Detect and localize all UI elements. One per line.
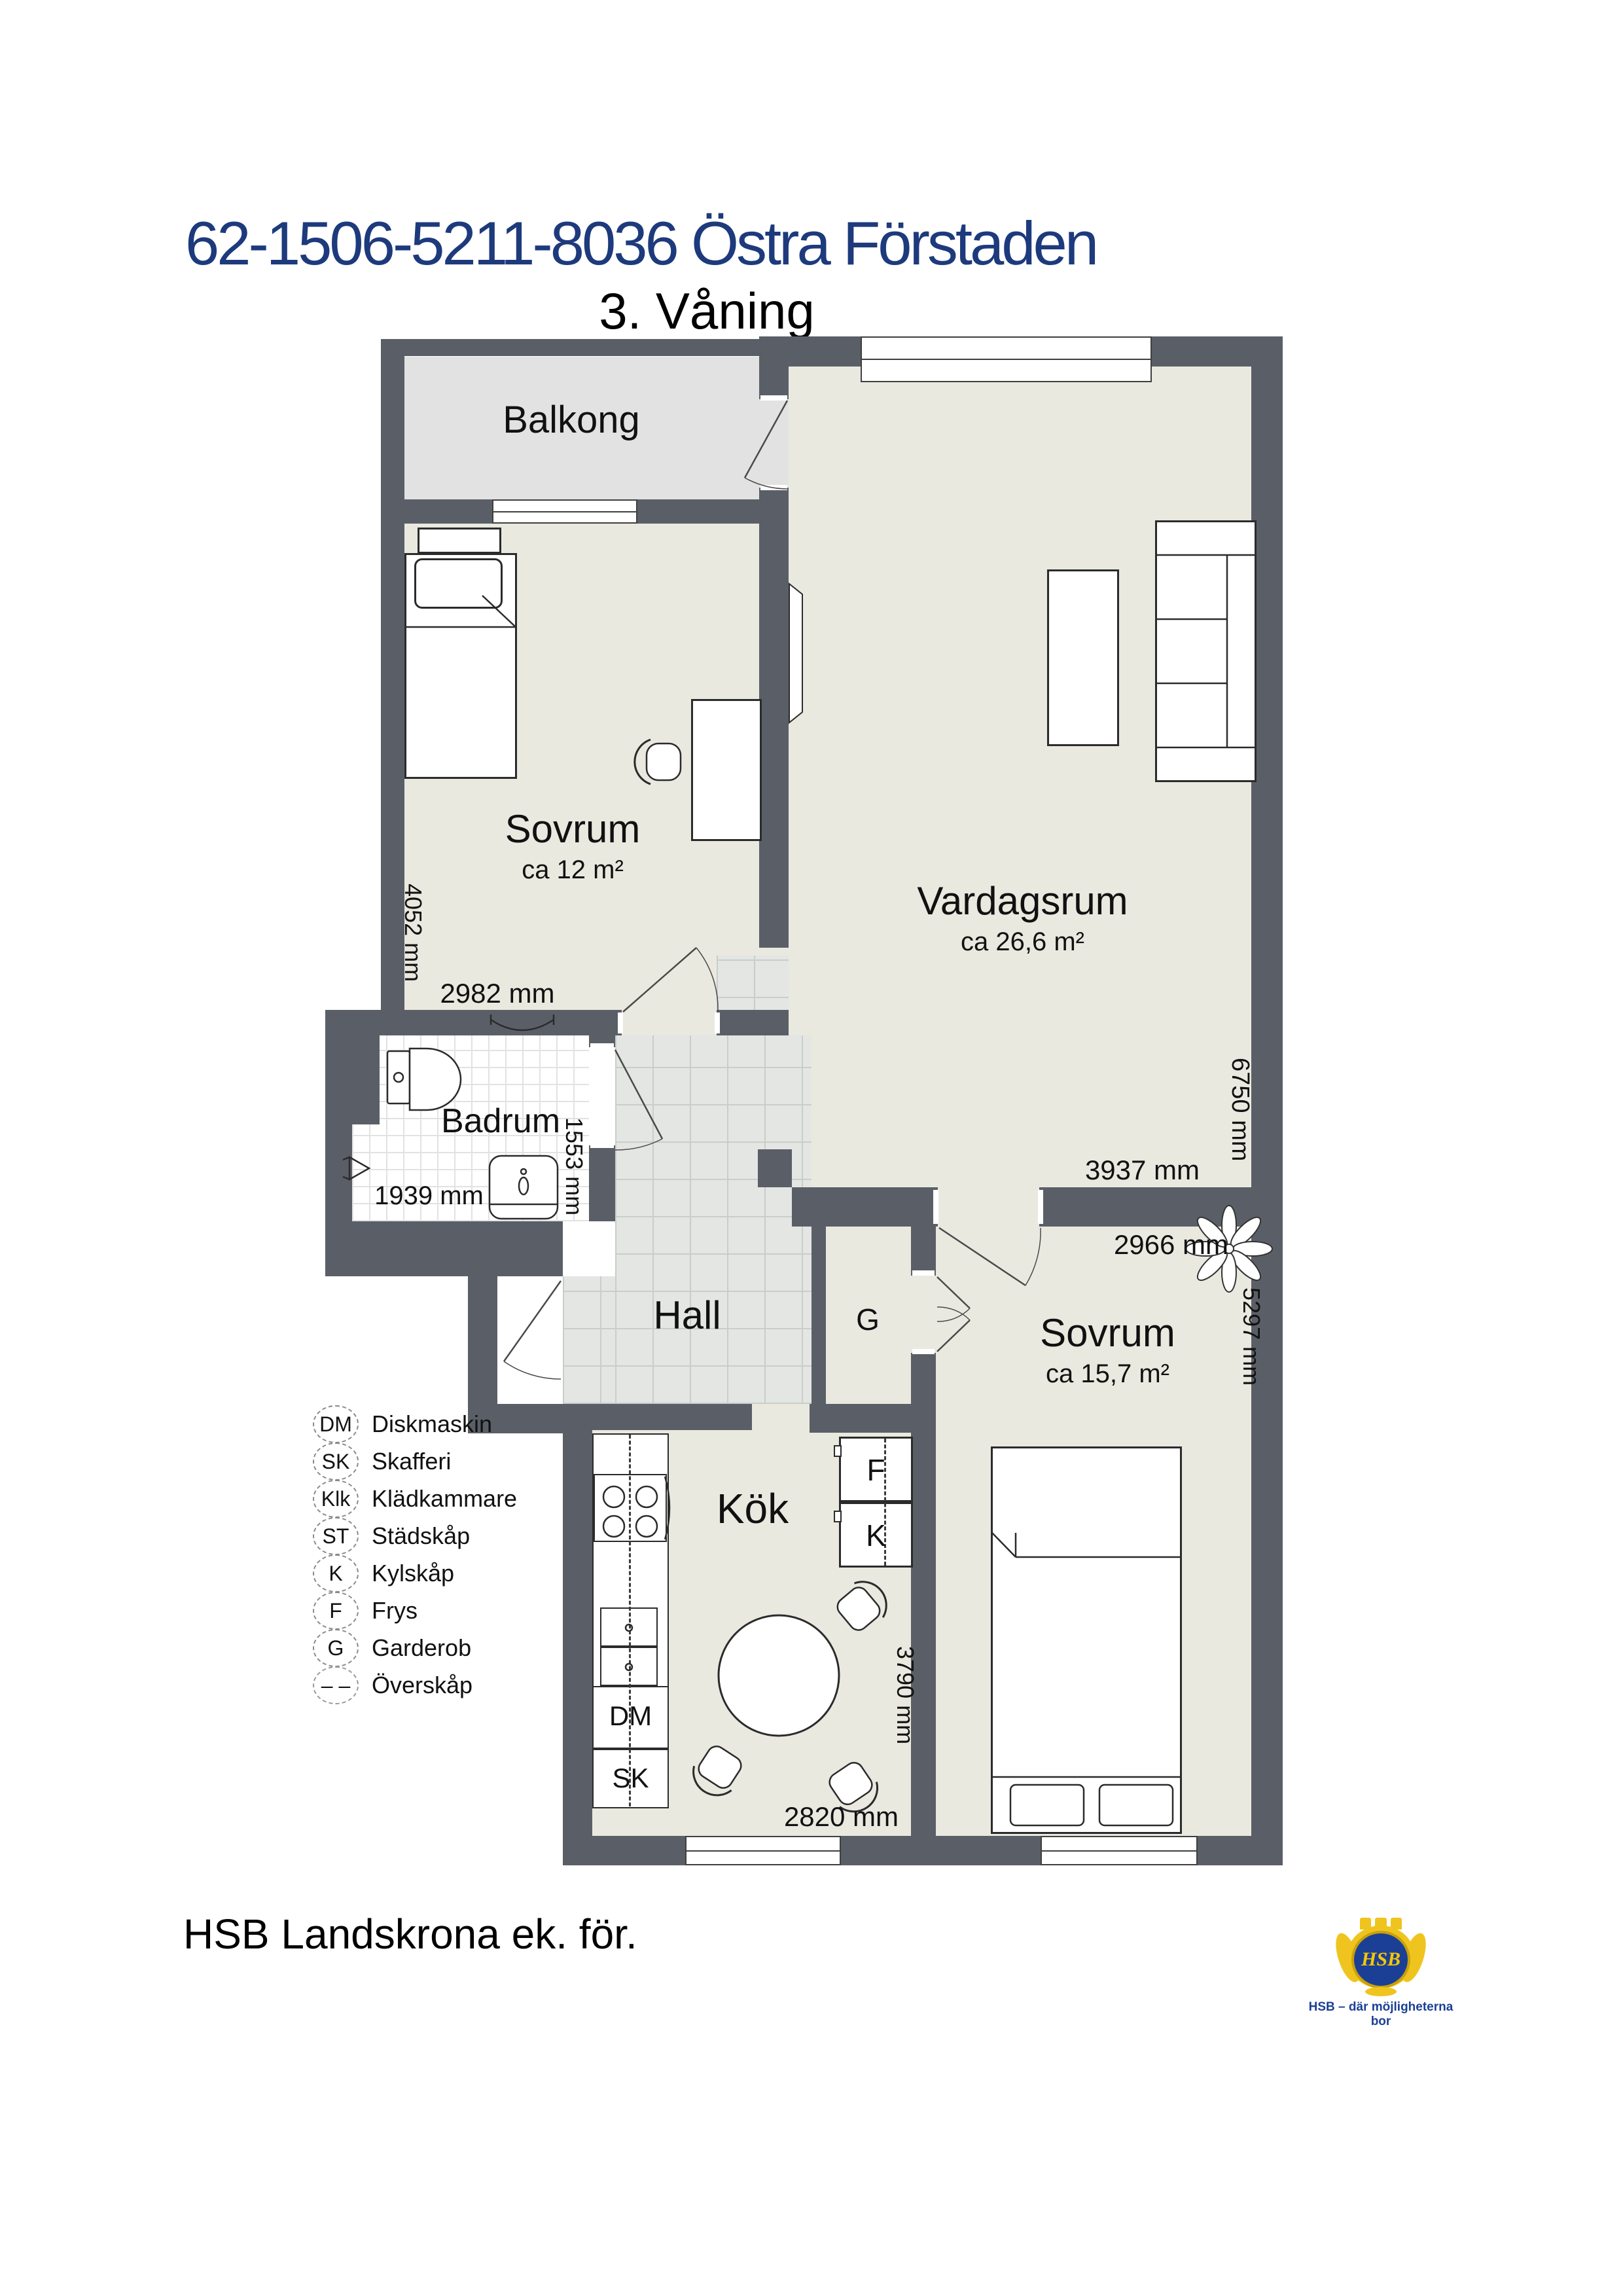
legend-row-garderob: G Garderob: [313, 1630, 471, 1666]
dim-kok-height: 3790 mm: [893, 1622, 918, 1769]
hsb-crest-icon: HSB: [1332, 1918, 1430, 1996]
single-bed-duvet: [406, 596, 516, 627]
legend-label: Skafferi: [372, 1448, 451, 1475]
room-label-kok: Kök: [681, 1487, 825, 1531]
unit-label-skafferi: SK: [592, 1764, 669, 1793]
dining-table: [719, 1615, 839, 1736]
legend-label: Städskåp: [372, 1522, 470, 1550]
dim-kok-width: 2820 mm: [764, 1803, 918, 1831]
room-area-sovrum-1: ca 12 m²: [458, 856, 687, 884]
hsb-logo: HSB HSB – där möjligheterna bor: [1302, 1918, 1459, 2029]
towel-rail-icon: [491, 1020, 554, 1030]
footer-association-name: HSB Landskrona ek. för.: [183, 1910, 637, 1958]
balcony-door-arc: [745, 478, 787, 489]
sovrum2-door-leaf: [939, 1228, 1026, 1285]
hsb-monogram-text: HSB: [1361, 1948, 1400, 1971]
entry-door-leaf: [504, 1281, 561, 1361]
dim-sovrum1-height: 4052 mm: [401, 869, 425, 997]
garderob-door-arc: [937, 1308, 970, 1321]
legend-label: Diskmaskin: [372, 1410, 492, 1438]
room-label-hall: Hall: [622, 1295, 753, 1336]
legend-row-overskap: – – Överskåp: [313, 1667, 473, 1704]
floorplan-page: 62-1506-5211-8036 Östra Förstaden 3. Vån…: [0, 0, 1623, 2296]
entry-door-arc: [504, 1361, 561, 1379]
room-label-badrum: Badrum: [419, 1103, 582, 1139]
room-label-vardagsrum: Vardagsrum: [890, 880, 1155, 922]
shower-icon: [349, 1157, 369, 1179]
legend-abbr: G: [313, 1629, 359, 1667]
drawer-handle: [626, 1624, 632, 1631]
unit-label-kylskap: K: [839, 1520, 913, 1551]
unit-label-diskmaskin: DM: [592, 1702, 669, 1731]
room-label-balkong: Balkong: [457, 401, 686, 440]
legend-label: Garderob: [372, 1634, 471, 1662]
legend-label: Kylskåp: [372, 1560, 454, 1587]
room-label-sovrum-1: Sovrum: [458, 808, 687, 850]
sofa-lines: [1155, 555, 1257, 747]
dim-badrum-width: 1939 mm: [365, 1182, 493, 1210]
legend-abbr: SK: [313, 1443, 359, 1480]
dim-vardagsrum-width: 3937 mm: [1065, 1156, 1219, 1185]
badrum-door-leaf: [615, 1050, 662, 1139]
dim-vardagsrum-height: 6750 mm: [1226, 1039, 1253, 1180]
badrum-door-arc: [615, 1139, 662, 1150]
garderob-door-leaf: [937, 1320, 970, 1352]
dim-sovrum1-width: 2982 mm: [429, 979, 566, 1008]
legend-row-diskmaskin: DM Diskmaskin: [313, 1406, 492, 1443]
legend-abbr: DM: [313, 1405, 359, 1443]
dim-sovrum2-width: 2966 mm: [1094, 1230, 1248, 1259]
shower-spray: [343, 1177, 349, 1179]
hsb-monogram: HSB: [1351, 1931, 1410, 1988]
legend-row-stadskap: ST Städskåp: [313, 1518, 470, 1554]
sovrum1-door-arc: [696, 948, 718, 1012]
sovrum2-door-arc: [1026, 1228, 1041, 1285]
hsb-tagline: HSB – där möjligheterna bor: [1302, 2000, 1459, 2029]
dim-badrum-height: 1553 mm: [562, 1107, 586, 1225]
stove-burners: [603, 1477, 669, 1670]
dining-chair: [831, 1573, 895, 1637]
legend-label: Frys: [372, 1597, 418, 1624]
legend-abbr: ST: [313, 1517, 359, 1555]
legend-row-kladkammare: Klk Klädkammare: [313, 1480, 517, 1517]
room-area-vardagsrum: ca 26,6 m²: [890, 928, 1155, 956]
sovrum1-door-leaf: [623, 948, 696, 1012]
legend-abbr: K: [313, 1554, 359, 1592]
unit-label-frys: F: [839, 1454, 913, 1486]
legend-row-skafferi: SK Skafferi: [313, 1443, 451, 1480]
legend-abbr: – –: [313, 1666, 359, 1704]
pillow: [1099, 1785, 1173, 1825]
dim-sovrum2-height: 5297 mm: [1239, 1266, 1264, 1407]
legend-row-frys: F Frys: [313, 1592, 418, 1629]
double-bed-details: [992, 1533, 1181, 1825]
pillow: [1010, 1785, 1084, 1825]
shower-spray: [343, 1157, 349, 1160]
desk-chair: [635, 740, 681, 784]
toilet-bowl: [410, 1049, 461, 1110]
closet-label-garderob: G: [847, 1304, 889, 1335]
drawer-handle: [626, 1664, 632, 1670]
legend-label: Klädkammare: [372, 1485, 517, 1513]
legend-abbr: F: [313, 1592, 359, 1630]
garderob-door-arc: [937, 1307, 970, 1320]
legend-label: Överskåp: [372, 1672, 473, 1699]
toilet-tank: [387, 1051, 410, 1103]
legend-abbr: Klk: [313, 1480, 359, 1518]
room-label-sovrum-2: Sovrum: [991, 1312, 1224, 1354]
balcony-door-leaf: [745, 401, 787, 478]
sink: [490, 1156, 558, 1219]
legend-row-kylskap: K Kylskåp: [313, 1555, 454, 1592]
room-area-sovrum-2: ca 15,7 m²: [991, 1360, 1224, 1388]
dining-chair: [685, 1741, 747, 1804]
radiator: [789, 584, 802, 723]
garderob-door-leaf: [937, 1277, 970, 1308]
ribbon-icon: [1365, 1987, 1397, 1996]
